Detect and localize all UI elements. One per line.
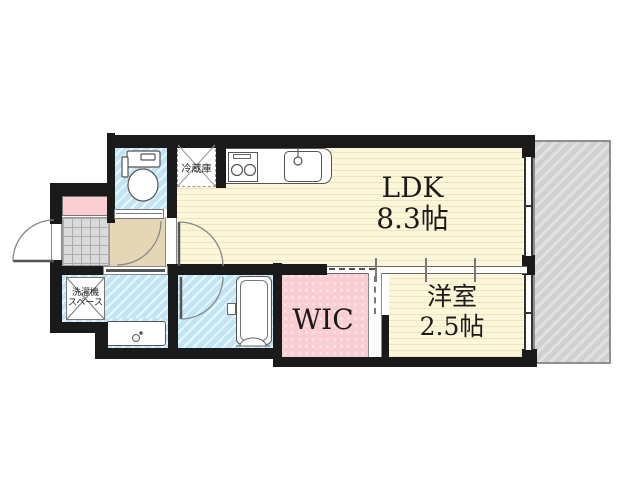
refrigerator-label: 冷蔵庫	[177, 160, 216, 175]
western-room-label: 洋室 2.5帖	[390, 282, 514, 342]
ldk-room-label: LDK 8.3帖	[345, 172, 480, 234]
washer-space-label: 洗濯機 スペース	[64, 288, 107, 308]
wic-label: WIC	[283, 305, 363, 335]
wall-hall-bottom	[62, 266, 104, 275]
western-room-name: 洋室	[390, 282, 514, 312]
wall-toilet-right	[167, 135, 177, 218]
entrance-sill	[51, 222, 62, 262]
ldk-name: LDK	[345, 172, 480, 203]
wall-bottom-left	[95, 348, 282, 359]
bathtub-inner	[240, 280, 268, 341]
partition-tick-2	[425, 258, 427, 282]
wall-bottom-right	[273, 357, 537, 367]
toilet-door-icon	[114, 209, 164, 219]
entrance-door-arc-icon	[13, 220, 54, 261]
partition-tick-3	[474, 258, 476, 282]
wall-notch-vertical	[95, 330, 108, 350]
washer-label-line2: スペース	[64, 298, 107, 308]
wall-left-lower	[50, 260, 62, 332]
partition-tick-1	[375, 258, 377, 282]
kitchen-sink-icon	[284, 151, 322, 182]
floorplan-canvas: LDK 8.3帖 洋室 2.5帖 WIC 冷蔵庫 洗濯機 スペース	[0, 0, 640, 480]
hallway-floor	[110, 217, 167, 266]
washer-label-line1: 洗濯機	[64, 288, 107, 298]
ldk-window-sash	[524, 205, 533, 207]
wall-right-top-corner	[522, 135, 535, 158]
stove-grill	[233, 154, 251, 159]
toilet-room-floor	[115, 147, 167, 209]
western-room-size: 2.5帖	[390, 312, 514, 342]
balcony-hatch-icon	[533, 140, 611, 364]
ldk-doorway-strip	[165, 218, 177, 266]
wic-top-door-icon	[329, 268, 375, 270]
toilet-door-track	[116, 213, 162, 214]
wall-wic-bedroom-stub	[381, 315, 389, 358]
vanity-sink-icon	[106, 321, 166, 346]
wall-bath-divider	[168, 275, 178, 350]
wall-kitchen-stub	[216, 135, 226, 188]
wall-wic-left	[273, 263, 282, 358]
wall-shoebox-top	[50, 183, 112, 196]
ldk-size: 8.3帖	[345, 203, 480, 234]
shoe-cabinet-icon	[62, 196, 108, 216]
wall-ldk-bottom	[167, 264, 327, 275]
washroom-door-leaf	[106, 269, 165, 272]
bedroom-window-sash	[524, 312, 533, 314]
genkan-tile-icon	[62, 217, 110, 266]
bath-faucet-box	[227, 303, 236, 315]
